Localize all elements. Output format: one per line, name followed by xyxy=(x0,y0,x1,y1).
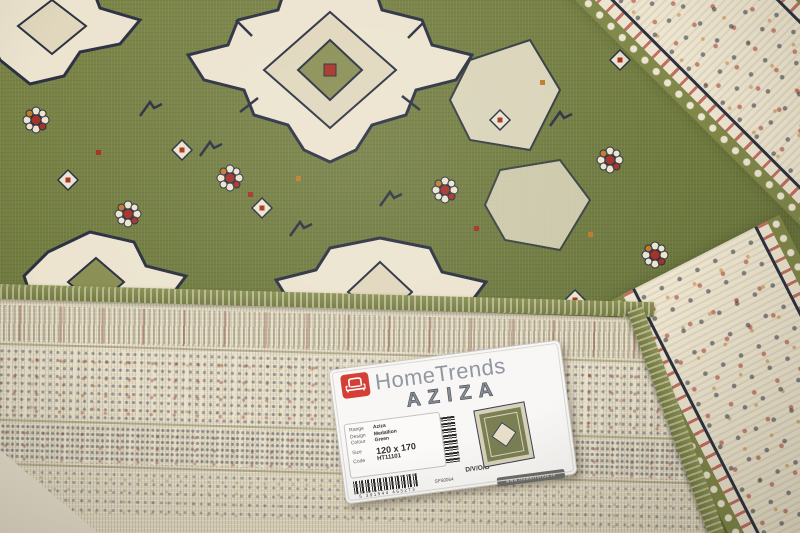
spec-table: Range Aziza Design Medallion Colour Gree… xyxy=(343,412,446,479)
rug-thumbnail-border xyxy=(484,412,525,458)
care-label: HomeTrends AZIZA Range Aziza Design Meda… xyxy=(328,339,578,504)
rug-photo: HomeTrends AZIZA Range Aziza Design Meda… xyxy=(0,0,800,533)
spec-value: Green xyxy=(374,436,389,444)
rug-thumbnail-medallion xyxy=(492,422,517,447)
armchair-icon xyxy=(344,376,366,394)
sku-code: SFS0054 xyxy=(434,476,454,483)
rug-thumbnail xyxy=(474,402,533,466)
